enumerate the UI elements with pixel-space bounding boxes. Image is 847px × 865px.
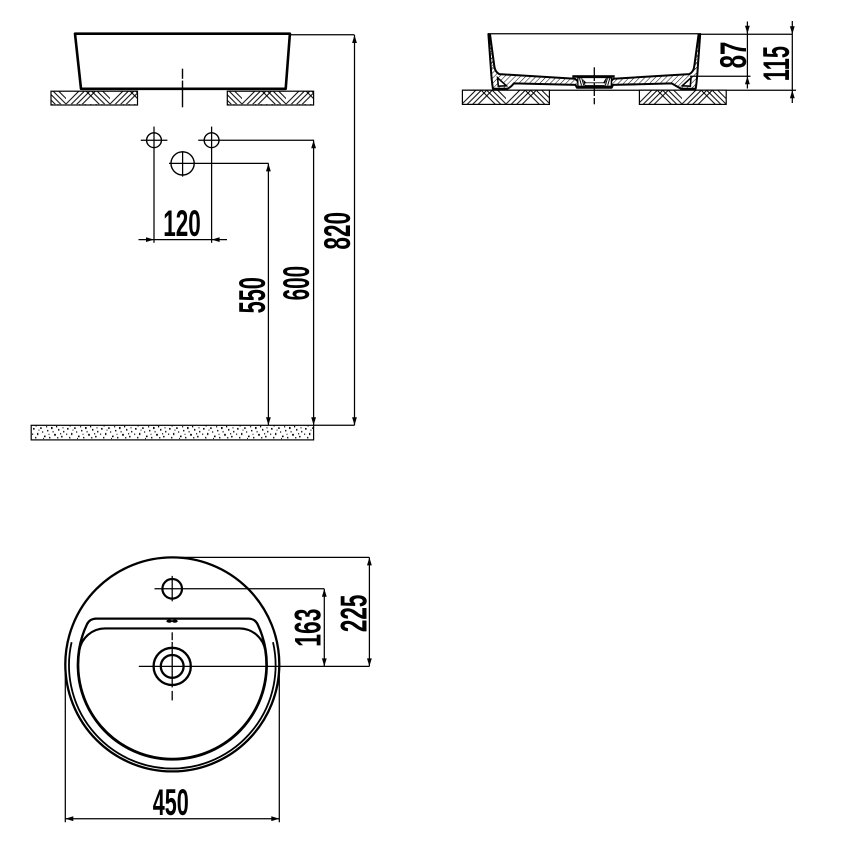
svg-text:450: 450 — [153, 782, 189, 823]
svg-text:550: 550 — [232, 277, 273, 313]
svg-text:87: 87 — [713, 42, 754, 69]
svg-text:600: 600 — [276, 266, 317, 301]
svg-text:120: 120 — [163, 203, 201, 244]
svg-text:820: 820 — [317, 212, 358, 250]
svg-text:163: 163 — [288, 609, 329, 647]
svg-text:115: 115 — [756, 46, 797, 81]
svg-text:225: 225 — [333, 595, 374, 633]
